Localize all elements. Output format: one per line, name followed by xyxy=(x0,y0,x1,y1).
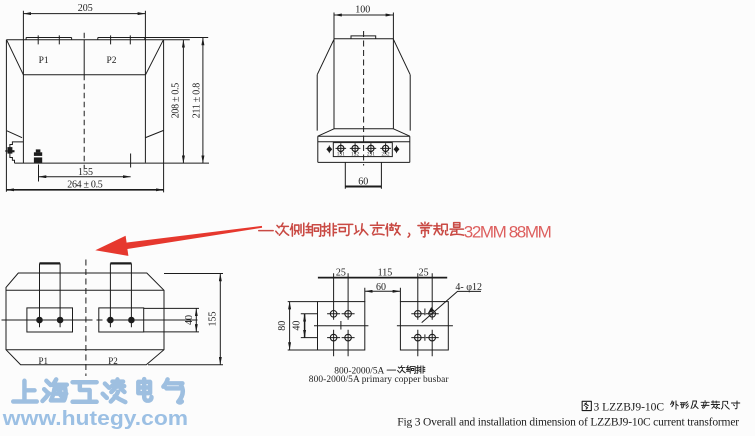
svg-text:3 LZZBJ9-10C: 3 LZZBJ9-10C xyxy=(594,401,665,413)
svg-text:115: 115 xyxy=(378,267,393,278)
svg-text:208 ± 0.5: 208 ± 0.5 xyxy=(170,83,181,119)
svg-text:P2: P2 xyxy=(108,356,118,366)
svg-text:80: 80 xyxy=(277,321,288,331)
svg-text:60: 60 xyxy=(376,282,386,293)
svg-text:4- φ12: 4- φ12 xyxy=(455,282,482,293)
svg-text:25: 25 xyxy=(419,267,429,278)
svg-text:2S2: 2S2 xyxy=(382,151,390,157)
svg-text:60: 60 xyxy=(358,176,368,187)
svg-text:P1: P1 xyxy=(39,56,49,66)
svg-text:2S1: 2S1 xyxy=(367,151,375,157)
svg-text:155: 155 xyxy=(78,167,93,178)
svg-text:1S2: 1S2 xyxy=(351,151,359,157)
svg-text:40: 40 xyxy=(292,321,303,331)
svg-text:25: 25 xyxy=(336,267,346,278)
svg-text:264 ± 0.5: 264 ± 0.5 xyxy=(67,179,103,190)
svg-text:40: 40 xyxy=(184,315,195,325)
svg-text:211 ± 0.8: 211 ± 0.8 xyxy=(191,83,202,119)
svg-text:www.hutegy.com: www.hutegy.com xyxy=(2,407,188,430)
svg-text:Fig 3 Overall and installation: Fig 3 Overall and installation dimension… xyxy=(397,416,739,428)
svg-text:P2: P2 xyxy=(106,56,116,66)
svg-text:205: 205 xyxy=(78,3,93,14)
svg-text:1S1: 1S1 xyxy=(337,151,345,157)
svg-text:800-2000/5A primary copper bus: 800-2000/5A primary copper busbar xyxy=(309,375,450,385)
svg-text:P1: P1 xyxy=(38,356,48,366)
svg-text:32MM 88MM: 32MM 88MM xyxy=(464,222,552,241)
svg-text:100: 100 xyxy=(355,4,370,15)
svg-text:155: 155 xyxy=(207,312,218,327)
